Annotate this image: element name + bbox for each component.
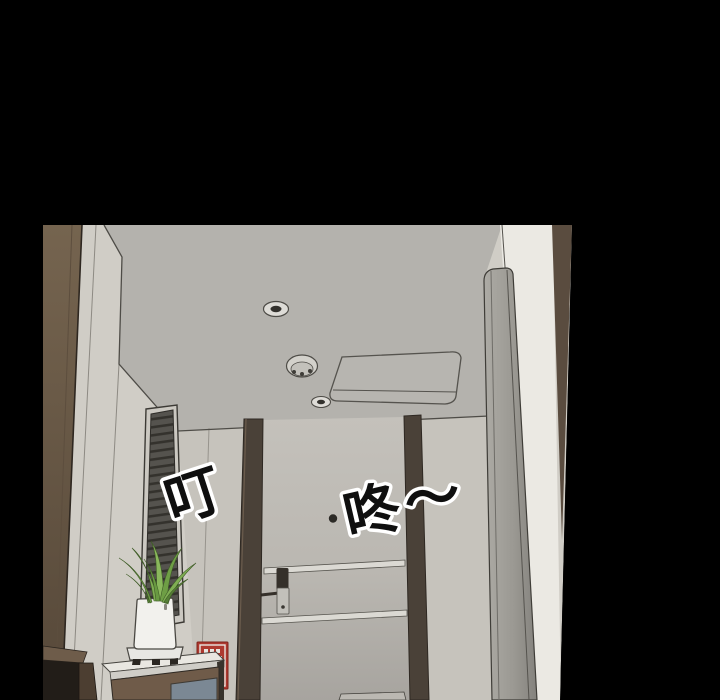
- pot-detail: [164, 604, 167, 610]
- comic-panel: 叮 咚～: [0, 0, 720, 700]
- recessed-light-2: [312, 397, 331, 408]
- lock-body-lower: [277, 588, 289, 614]
- door-face: [260, 417, 411, 700]
- ac-vent: [330, 352, 461, 404]
- entry-door: [236, 415, 429, 700]
- light-bulb: [317, 400, 325, 405]
- lock-handle: [261, 593, 279, 595]
- tray-foot: [170, 658, 178, 665]
- hallway-scene: 叮 咚～: [0, 0, 720, 700]
- vent-body: [330, 352, 461, 404]
- detector-nub: [292, 370, 296, 374]
- recessed-light-1: [264, 302, 289, 317]
- light-bulb: [271, 306, 282, 312]
- detector-nub: [300, 372, 304, 376]
- lock-keyhole: [281, 605, 285, 609]
- tray-foot: [132, 659, 141, 665]
- tray-foot: [152, 659, 160, 665]
- lock-body-upper: [277, 568, 289, 590]
- smoke-detector: [287, 355, 318, 377]
- detector-nub: [308, 369, 312, 373]
- plant-pot: [134, 598, 176, 649]
- sign-glyph: [204, 649, 208, 653]
- door-peephole: [329, 514, 337, 522]
